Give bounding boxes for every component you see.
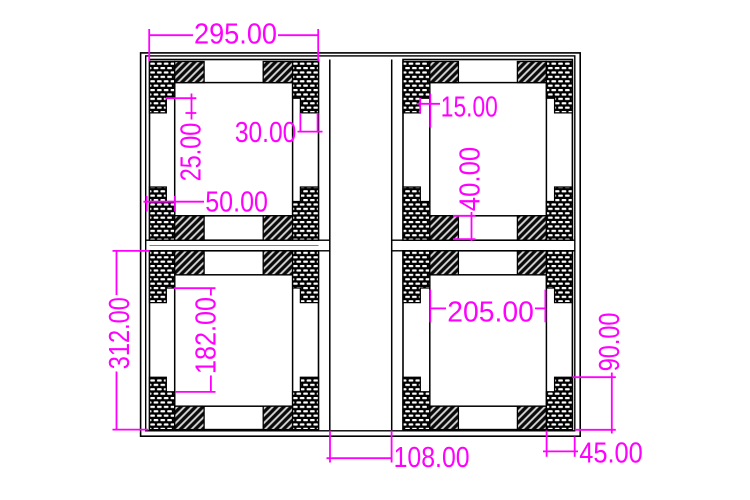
svg-text:30.00: 30.00 bbox=[235, 117, 297, 149]
svg-text:50.00: 50.00 bbox=[205, 187, 268, 219]
svg-text:45.00: 45.00 bbox=[579, 437, 643, 469]
svg-text:312.00: 312.00 bbox=[104, 297, 136, 369]
svg-text:40.00: 40.00 bbox=[455, 147, 487, 211]
svg-text:295.00: 295.00 bbox=[194, 19, 277, 51]
svg-text:108.00: 108.00 bbox=[394, 442, 470, 474]
svg-text:15.00: 15.00 bbox=[441, 92, 498, 124]
svg-text:205.00: 205.00 bbox=[447, 297, 534, 329]
svg-text:90.00: 90.00 bbox=[594, 313, 626, 372]
svg-text:25.00: 25.00 bbox=[176, 123, 208, 182]
svg-text:182.00: 182.00 bbox=[191, 297, 223, 374]
